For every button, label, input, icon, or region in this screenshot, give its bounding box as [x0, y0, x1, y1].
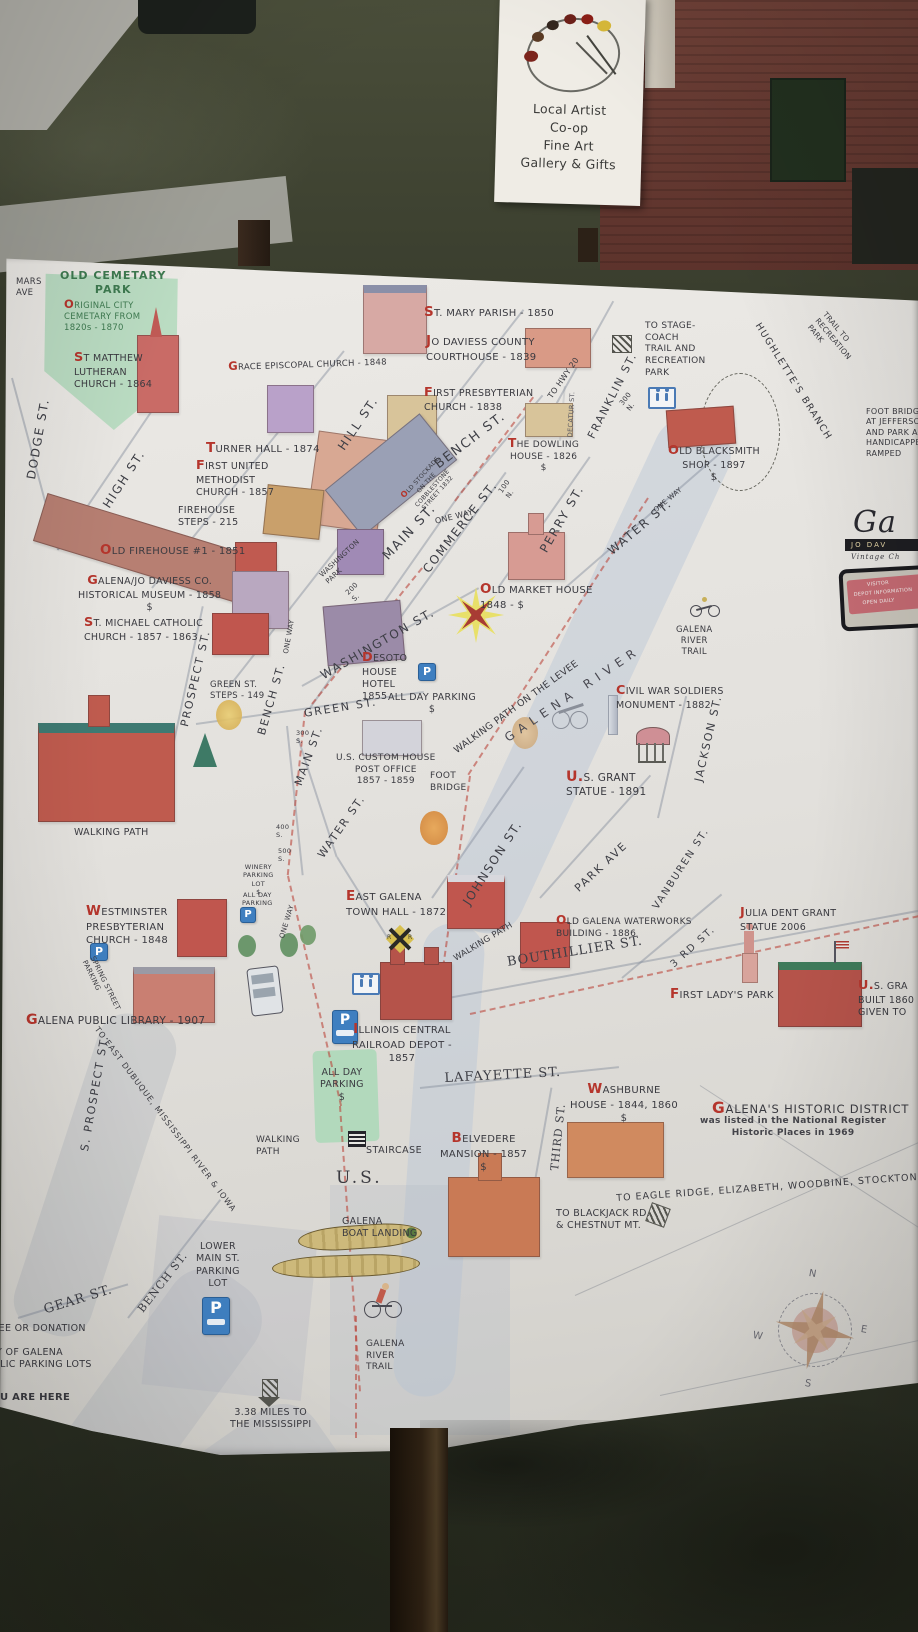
label-lower-main-lot: LOWER MAIN ST. PARKING LOT: [196, 1241, 240, 1290]
sign-post-bottom: [390, 1428, 448, 1632]
tree-icon: [238, 935, 256, 957]
label-historical-museum: GALENA/JO DAVIESS CO. HISTORICAL MUSEUM …: [78, 573, 221, 614]
label-all-day-parking-lot: ALL DAY PARKING $: [320, 1067, 364, 1104]
label-green-steps: GREEN ST. STEPS - 149: [210, 680, 264, 702]
bicycle-icon: [690, 599, 720, 617]
label-courthouse: JO DAVIESS COUNTY COURTHOUSE - 1839: [426, 333, 536, 364]
building-st-mary: [363, 285, 427, 354]
label-town-hall: EAST GALENA TOWN HALL - 1872: [346, 888, 446, 919]
building-blacksmith-shop: [666, 406, 736, 449]
label-mars-ave: MARS AVE: [16, 277, 42, 299]
post-shadow: [420, 1420, 720, 1530]
bench: [852, 168, 918, 264]
parking-sign-icon: P: [240, 907, 256, 923]
trolley-icon: [246, 965, 284, 1017]
railroad-crossing-icon: R R: [386, 925, 414, 953]
pine-tree-icon: [193, 733, 217, 767]
label-st-michael: ST. MICHAEL CATHOLIC CHURCH - 1857 - 186…: [84, 615, 203, 644]
label-all-day-parking: ALL DAY PARKING $: [388, 692, 476, 717]
restroom-icon: [352, 973, 380, 995]
label-belvedere: BELVEDERE MANSION - 1857 $: [440, 1130, 527, 1174]
dark-door: [770, 78, 846, 182]
label-westminster: WESTMINSTER PRESBYTERIAN CHURCH - 1848: [86, 903, 168, 947]
label-miles-to-mississippi: 3.38 MILES TO THE MISSISSIPPI: [230, 1407, 311, 1432]
label-park-ave: PARK AVE: [572, 839, 631, 896]
label-300s: 300 S.: [296, 729, 309, 746]
label-blackjack: TO BLACKJACK RD. & CHESTNUT MT.: [556, 1208, 650, 1233]
building-market-cupola: [528, 513, 544, 535]
label-high-st: HIGH ST.: [100, 447, 149, 511]
label-trail-to-rec: TRAIL TO RECREATION PARK: [806, 310, 861, 368]
label-city-lots: CITY OF GALENA PUBLIC PARKING LOTS: [0, 1347, 92, 1372]
label-custom-house: U.S. CUSTOM HOUSE POST OFFICE 1857 - 185…: [336, 753, 436, 788]
label-dowling-house: THE DOWLING HOUSE - 1826 $: [508, 436, 579, 475]
label-first-ladys-park: FIRST LADY'S PARK: [670, 986, 774, 1004]
label-old-firehouse: OLD FIREHOUSE #1 - 1851: [100, 542, 246, 560]
label-decatur-st: DECATUR ST.: [566, 391, 577, 437]
label-washburne-house: WASHBURNE HOUSE - 1844, 1860 $: [570, 1081, 678, 1125]
label-foot-bridge: FOOT BRIDGE: [430, 771, 466, 794]
white-column: [645, 0, 675, 88]
label-water-st-south: WATER ST.: [315, 792, 369, 861]
building-belvedere: [448, 1177, 540, 1257]
label-grace-episcopal: GRACE EPISCOPAL CHURCH - 1848: [228, 353, 387, 374]
building-westminster: [177, 899, 227, 957]
label-200s: 200 S.: [344, 581, 367, 604]
label-old-market-house: OLD MARKET HOUSE 1848 - $: [480, 581, 593, 612]
label-walking-path-staircase: WALKING PATH: [256, 1135, 300, 1158]
label-historic-district-sub: was listed in the National Register Hist…: [700, 1116, 886, 1139]
label-100n: 100 N.: [497, 478, 520, 500]
label-julia-grant: JULIA DENT GRANT STATUE 2006: [740, 905, 836, 934]
building-custom-house: [362, 720, 422, 756]
label-free-donation: FREE OR DONATION: [0, 1323, 86, 1335]
label-first-methodist: FIRST UNITED METHODIST CHURCH - 1857: [196, 458, 274, 499]
label-grant-statue: U.S. GRANT STATUE - 1891: [566, 768, 646, 800]
label-400s: 400 S.: [276, 823, 289, 840]
building-school-tower: [88, 695, 110, 727]
building-railroad-depot: [380, 962, 452, 1020]
artist-sign-line: Gallery & Gifts: [495, 154, 641, 174]
label-all-day-small: ALL DAY PARKING: [242, 891, 273, 908]
label-us-highway: U.S.: [336, 1167, 383, 1189]
mississippi-arrow-icon: [262, 1379, 278, 1399]
compass-s: S: [804, 1377, 813, 1391]
building-st-michael: [212, 613, 269, 655]
building-washburne-house: [567, 1122, 664, 1178]
label-river-trail-north: GALENA RIVER TRAIL: [676, 625, 712, 658]
label-you-are-here: YOU ARE HERE: [0, 1391, 70, 1404]
tree-icon: [420, 811, 448, 845]
chamber-logo: Ga JO DAV Vintage Ch: [845, 507, 918, 567]
label-500s: 500 S.: [278, 847, 291, 864]
sign-post-top: [238, 220, 270, 266]
artist-coop-sign: Local Artist Co-op Fine Art Gallery & Gi…: [494, 0, 646, 206]
building-high-school: [38, 723, 175, 822]
label-st-mary: ST. MARY PARISH - 1850: [424, 304, 554, 322]
building-depot-tower: [424, 947, 439, 965]
staircase-icon: [348, 1131, 366, 1147]
sign-post-stub: [578, 228, 598, 262]
building-grant-home: [778, 962, 862, 1027]
restroom-icon: [648, 387, 676, 409]
palette-icon: [522, 13, 624, 97]
label-firehouse-steps: FIREHOUSE STEPS - 215: [178, 505, 239, 530]
label-grant-home: U.S. GRA BUILT 1860 GIVEN TO: [858, 978, 914, 1019]
compass-n: N: [808, 1267, 818, 1281]
photo-of-galena-map-sign: { "scene": { "artist_sign": { "lines": […: [0, 0, 918, 1632]
artist-sign-line: Fine Art: [495, 136, 641, 156]
compass-w: W: [752, 1329, 764, 1344]
label-spring-parking: SPRING STREET PARKING: [80, 955, 122, 1016]
label-cemetery-park: OLD CEMETARY PARK: [60, 269, 166, 298]
label-first-presbyterian: FIRST PRESBYTERIAN CHURCH - 1838: [424, 385, 533, 414]
gazebo-icon: [636, 727, 668, 763]
tree-icon: [300, 925, 316, 945]
artist-sign-line: Co-op: [496, 118, 642, 138]
visitor-sticker: VISITOR DEPOT INFORMATION OPEN DAILY: [838, 564, 918, 631]
label-railroad-depot: ILLINOIS CENTRAL RAILROAD DEPOT - 1857: [352, 1021, 452, 1065]
label-st-matthew: ST MATTHEW LUTHERAN CHURCH - 1864: [74, 350, 152, 391]
label-river-trail-south: GALENA RIVER TRAIL: [366, 1339, 405, 1374]
tree-icon: [216, 700, 242, 730]
map-board: N E W S P P P P P R R: [0, 255, 918, 1455]
label-staircase-text: STAIRCASE: [366, 1133, 422, 1158]
label-library: GALENA PUBLIC LIBRARY - 1907: [26, 1011, 205, 1029]
label-turner-hall: TURNER HALL - 1874: [206, 440, 320, 458]
label-foot-bridge-note: FOOT BRIDGE AT JEFFERSON AND PARK A HAND…: [866, 407, 918, 459]
parked-car: [138, 0, 256, 34]
parking-sign-icon: P: [418, 663, 436, 681]
compass-e: E: [860, 1323, 869, 1337]
label-vanburen-st: VANBUREN ST.: [650, 826, 712, 912]
flag-icon: [834, 941, 850, 963]
compass-rose-icon: N E W S: [770, 1285, 860, 1375]
label-blacksmith: OLD BLACKSMITH SHOP - 1897 $: [668, 443, 760, 484]
label-walking-path-west: WALKING PATH: [74, 827, 149, 839]
label-boat-landing: GALENA BOAT LANDING: [342, 1216, 418, 1241]
parking-car-sign-icon: P: [202, 1297, 230, 1335]
artist-sign-line: Local Artist: [496, 100, 642, 120]
cyclist-icon: [362, 1283, 402, 1319]
label-stagecoach: TO STAGE- COACH TRAIL AND RECREATION PAR…: [645, 321, 706, 379]
building-grace-episcopal: [267, 385, 314, 433]
trail-dashed: [355, 1316, 357, 1438]
label-cemetery-sub: ORIGINAL CITY CEMETARY FROM 1820s - 1870: [64, 297, 140, 334]
